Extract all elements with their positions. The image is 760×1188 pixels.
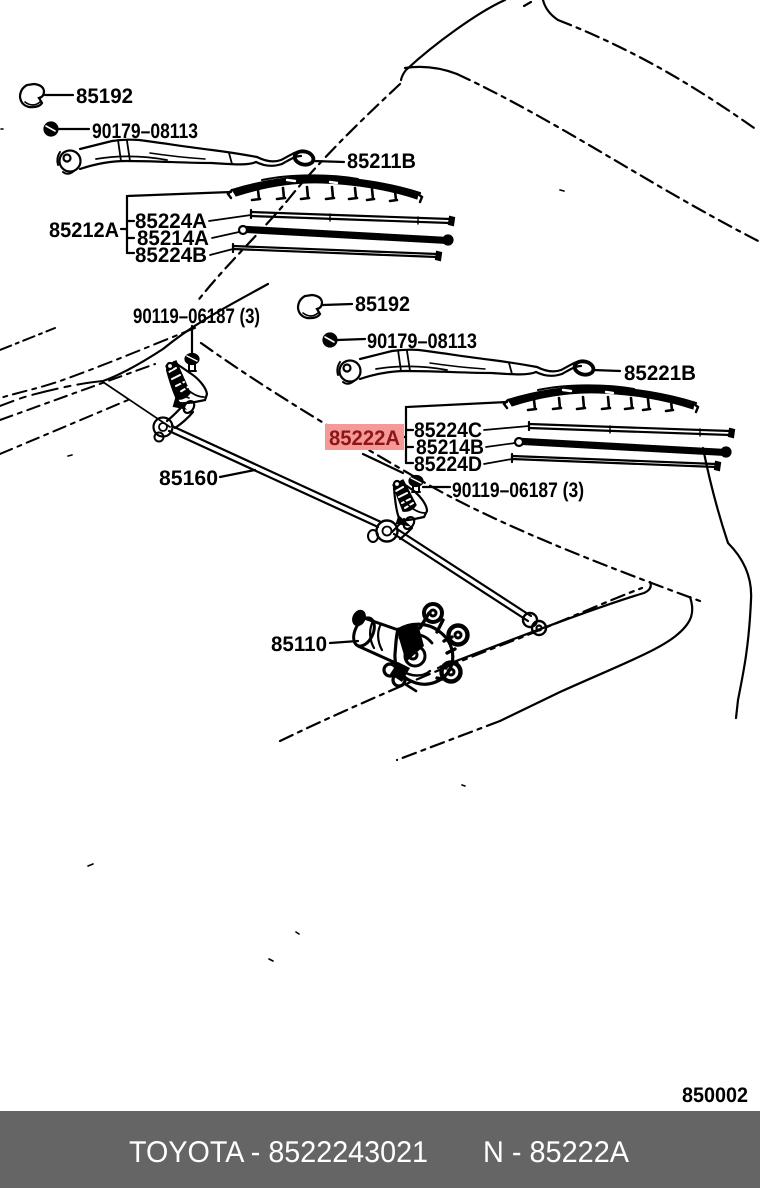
svg-text:85224B: 85224B — [135, 244, 207, 267]
svg-text:N - 85222A: N - 85222A — [483, 1136, 629, 1169]
svg-text:85222A: 85222A — [329, 427, 400, 450]
svg-text:85110: 85110 — [271, 633, 327, 656]
svg-text:90119–06187 (3): 90119–06187 (3) — [452, 479, 584, 502]
svg-text:90119–06187 (3): 90119–06187 (3) — [133, 305, 260, 328]
svg-text:85211B: 85211B — [347, 150, 416, 173]
svg-text:85160: 85160 — [159, 467, 218, 490]
svg-text:85224D: 85224D — [414, 453, 482, 476]
svg-text:85192: 85192 — [76, 85, 133, 108]
svg-text:TOYOTA - 8522243021: TOYOTA - 8522243021 — [129, 1136, 428, 1169]
svg-text:90179–08113: 90179–08113 — [367, 330, 477, 353]
svg-text:850002: 850002 — [682, 1084, 748, 1107]
svg-text:85192: 85192 — [355, 293, 410, 316]
svg-text:85212A: 85212A — [49, 219, 119, 242]
svg-text:90179–08113: 90179–08113 — [92, 120, 198, 143]
svg-text:85221B: 85221B — [624, 362, 696, 385]
